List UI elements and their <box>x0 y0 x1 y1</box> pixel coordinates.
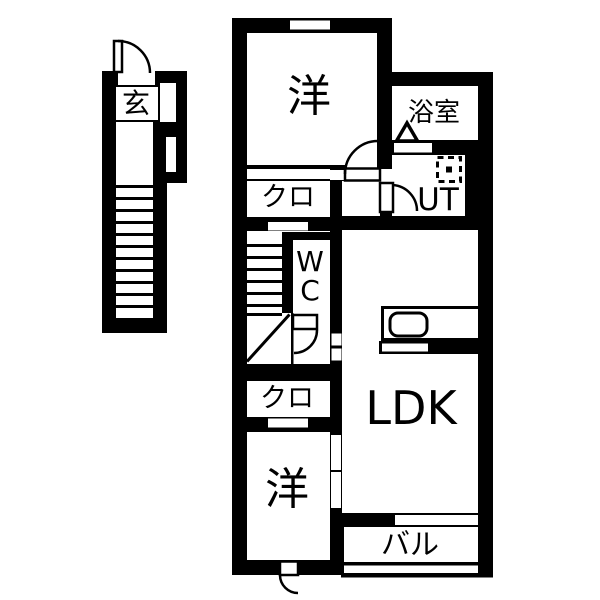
balcony-label: バル <box>381 527 439 561</box>
stair-tread <box>116 209 153 212</box>
balcony-outer-edge <box>341 573 493 578</box>
stair-tread <box>247 256 282 259</box>
wc-door-swing-arc <box>294 330 317 353</box>
stair-tread <box>116 257 153 260</box>
wall-ldk-top <box>330 216 493 230</box>
stair-winder-diagonal <box>247 315 290 362</box>
balcony-rail-line <box>341 562 478 566</box>
stairwell-opening <box>268 222 308 231</box>
stair-tread <box>116 197 153 200</box>
ldk-label: LDK <box>365 381 458 435</box>
wc-door-leaf <box>293 315 317 329</box>
sliding-door-panel <box>332 349 342 361</box>
vanity-counter <box>394 143 432 153</box>
kitchen-counter-front <box>382 344 428 352</box>
floorplan-drawing: 玄 <box>0 0 600 600</box>
stair-tread <box>247 268 282 271</box>
stair-tread <box>247 292 282 295</box>
stair-tread <box>116 233 153 236</box>
stair-tread <box>116 269 153 272</box>
utility-door-leaf <box>380 183 393 212</box>
wall-right <box>478 72 493 577</box>
utility-door-swing-arc <box>393 185 417 211</box>
stair-tread <box>116 293 153 296</box>
closet2-door-opening <box>268 419 308 428</box>
wall-duct <box>465 155 478 216</box>
bedroom2-exit-door-leaf <box>280 562 298 576</box>
entry-doorway-opening <box>118 71 155 85</box>
washer-drain-dot <box>446 167 452 173</box>
openings <box>247 21 478 526</box>
closet2-label: クロ <box>260 383 314 414</box>
stair-corridor <box>116 122 153 318</box>
stair-tread <box>247 244 282 247</box>
closet1-label: クロ <box>261 182 315 213</box>
stair-tread <box>247 280 282 283</box>
wall-left <box>232 18 247 575</box>
bedroom1-label: 洋 <box>287 71 331 122</box>
window <box>166 137 176 172</box>
stair-tread <box>116 281 153 284</box>
kitchen-sink <box>390 313 427 336</box>
shoe-cabinet <box>160 83 176 122</box>
sliding-door-panel <box>332 334 342 346</box>
utility-label: UT <box>417 182 460 218</box>
balcony-left-edge <box>341 527 344 577</box>
stair-tread <box>116 305 153 308</box>
window-bedroom1-top <box>290 21 330 30</box>
entrance-stair-block: 玄 <box>102 41 187 333</box>
closet1-door-opening <box>247 169 330 179</box>
stair-tread <box>116 221 153 224</box>
bedroom1-door-leaf <box>345 169 380 181</box>
sliding-door-panel <box>331 435 341 470</box>
wall <box>377 18 392 169</box>
stair-tread <box>247 313 282 316</box>
bathroom-label: 浴室 <box>408 98 460 128</box>
wc-label-c: C <box>300 274 320 307</box>
wall-stair-wc-divider <box>282 232 293 313</box>
window-ldk-balcony <box>395 515 478 525</box>
wall-wc-top <box>282 232 330 240</box>
stair-tread <box>247 304 282 307</box>
floorplan-canvas: 玄 <box>0 0 600 600</box>
bedroom2-label: 洋 <box>265 464 309 515</box>
sliding-door-panel <box>331 472 341 508</box>
wall-landing-bottom <box>232 364 342 381</box>
wall-bath-top <box>380 72 493 86</box>
bedroom2-exit-door-swing-arc <box>280 575 298 593</box>
stair-tread <box>116 185 153 188</box>
genkan-label: 玄 <box>122 87 150 120</box>
stair-tread <box>116 245 153 248</box>
entry-door-leaf <box>114 41 122 72</box>
